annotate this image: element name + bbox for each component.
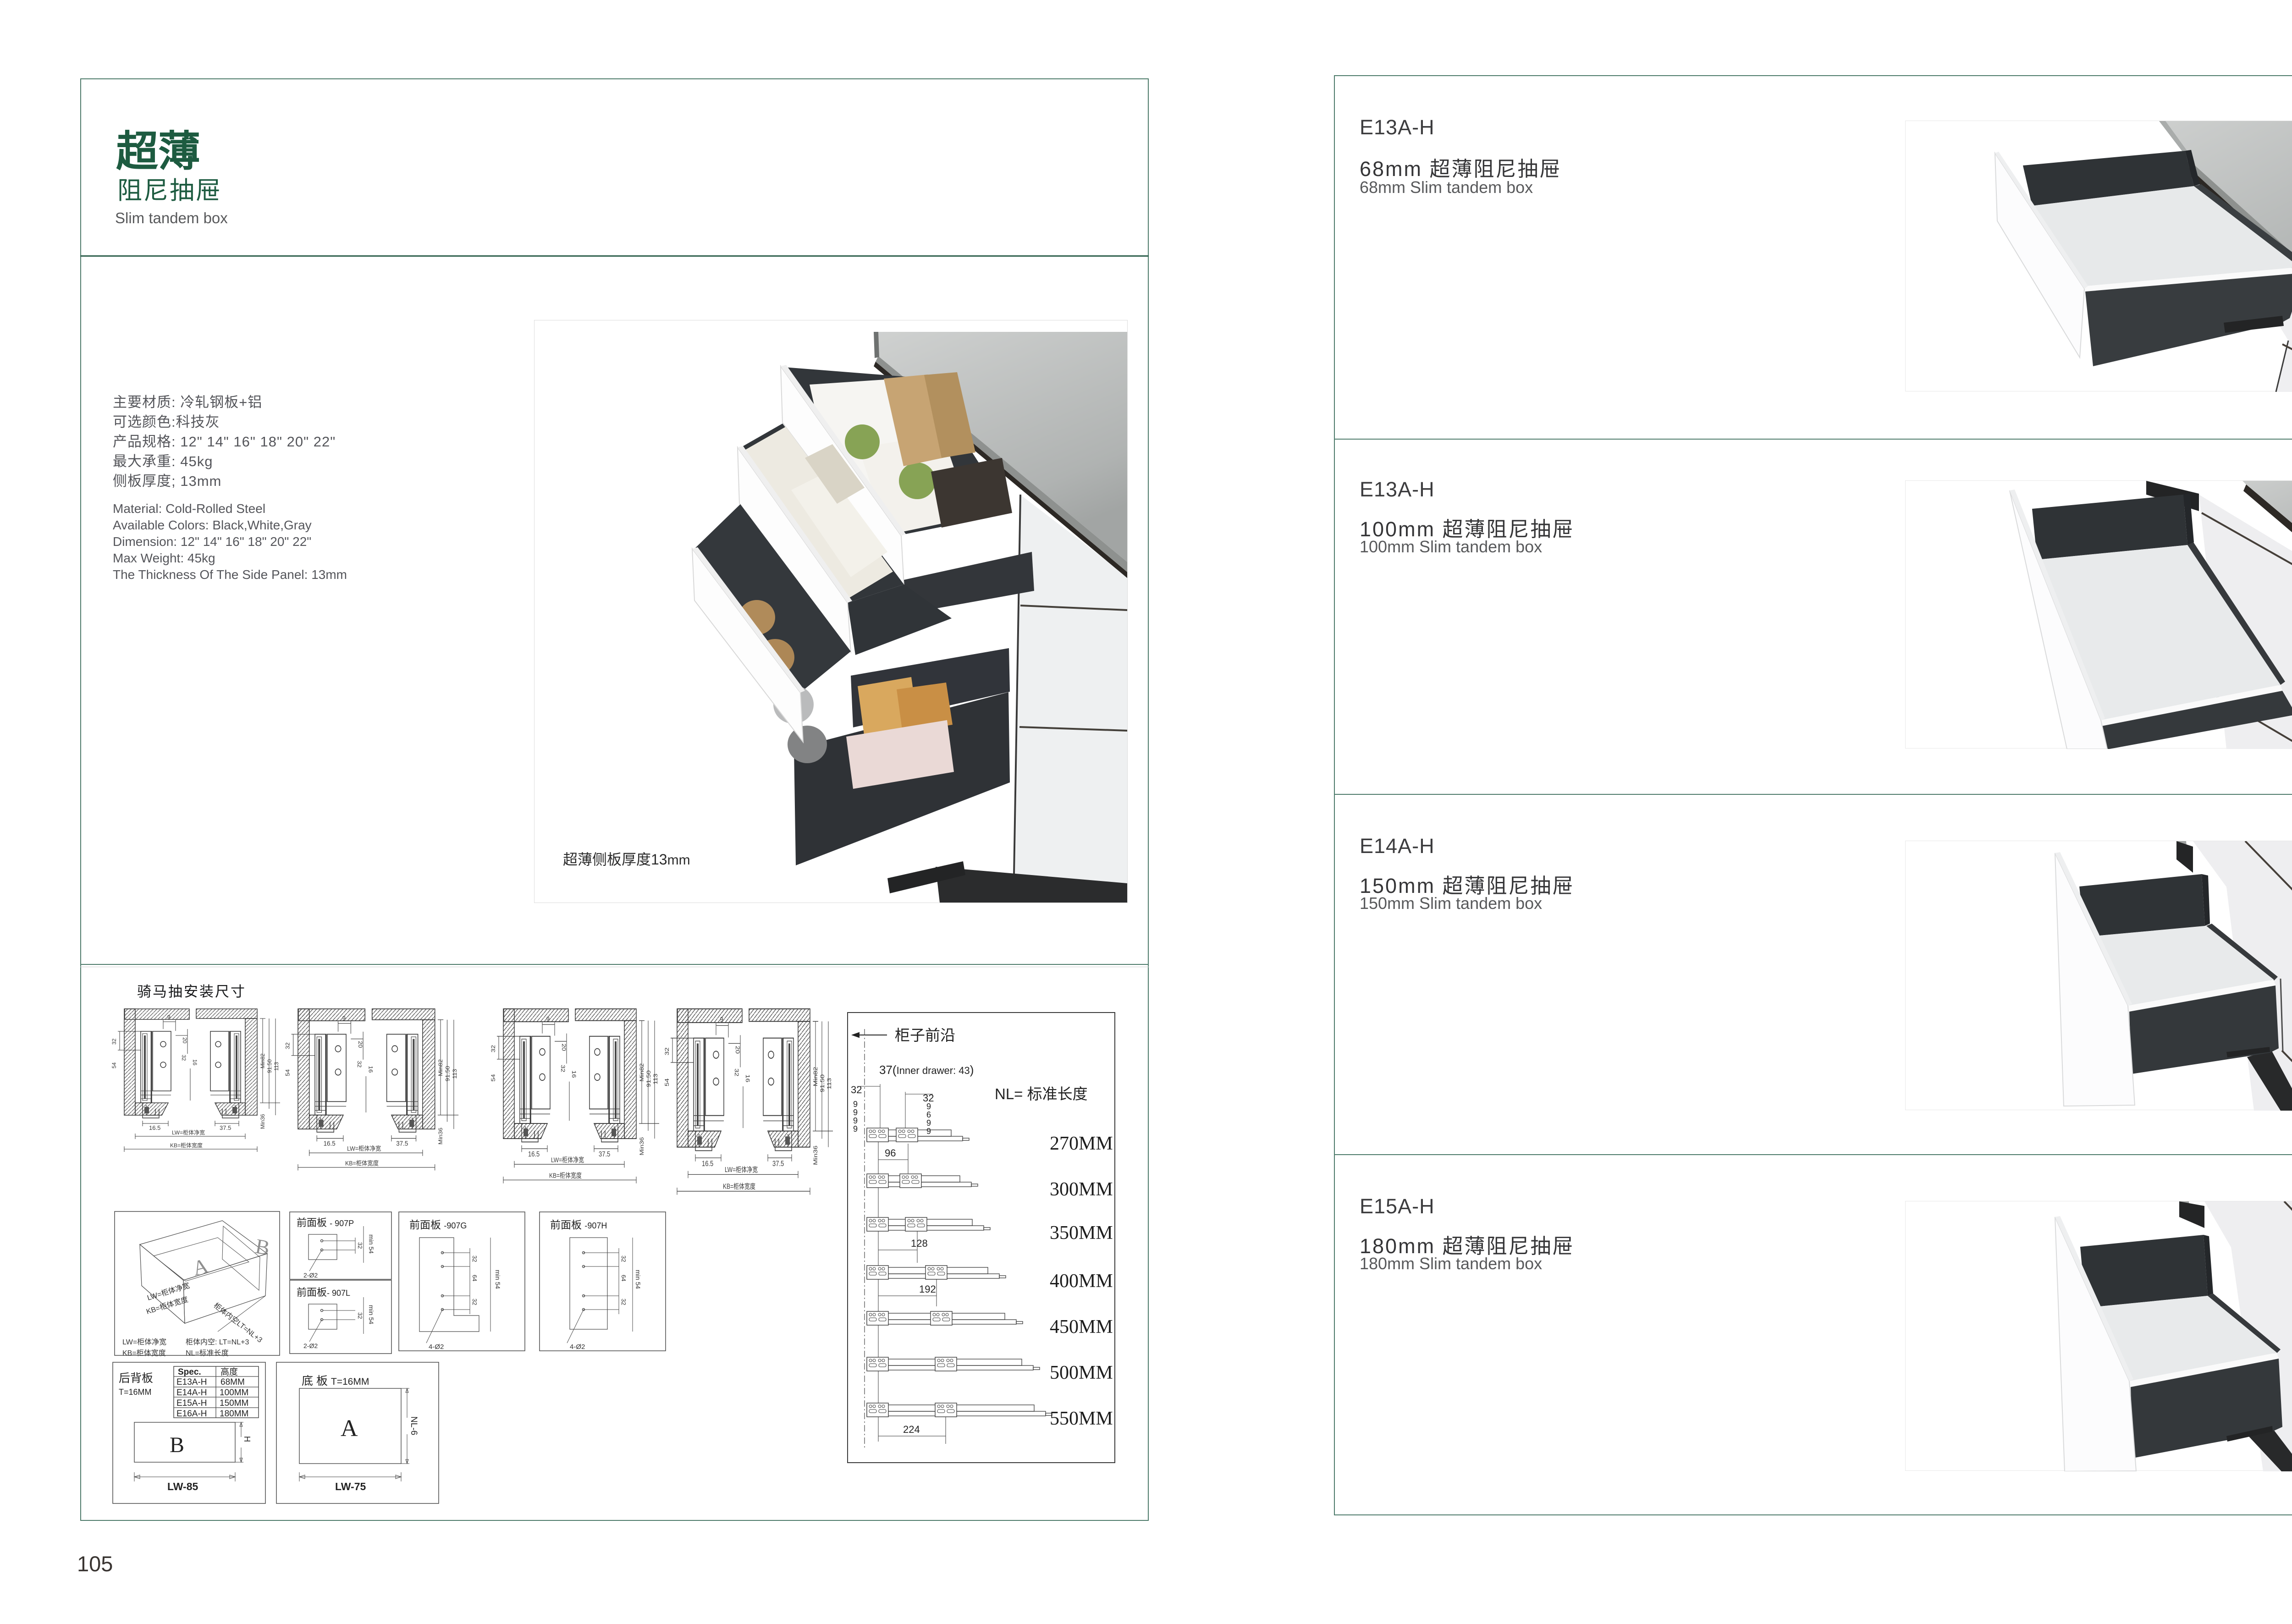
svg-text:9: 9 bbox=[853, 1124, 858, 1134]
svg-text:柜体内空: LT=NL+3: 柜体内空: LT=NL+3 bbox=[186, 1338, 249, 1346]
svg-text:224: 224 bbox=[903, 1424, 920, 1435]
svg-text:min 54: min 54 bbox=[368, 1305, 375, 1324]
svg-text:min 54: min 54 bbox=[368, 1234, 375, 1254]
svg-text:9: 9 bbox=[853, 1100, 858, 1109]
svg-text:4-Ø2: 4-Ø2 bbox=[570, 1343, 585, 1351]
svg-text:LW=柜体净宽: LW=柜体净宽 bbox=[122, 1338, 166, 1346]
svg-text:Spec.: Spec. bbox=[178, 1367, 201, 1377]
svg-text:E14A-H: E14A-H bbox=[176, 1388, 207, 1398]
svg-text:4-Ø2: 4-Ø2 bbox=[429, 1343, 444, 1351]
svg-text:前面板 - 907P: 前面板 - 907P bbox=[297, 1217, 354, 1228]
svg-text:9: 9 bbox=[926, 1127, 931, 1136]
svg-text:NL= 标准长度: NL= 标准长度 bbox=[995, 1085, 1088, 1102]
svg-text:后背板: 后背板 bbox=[119, 1372, 153, 1385]
svg-text:9: 9 bbox=[853, 1108, 858, 1117]
svg-text:32: 32 bbox=[357, 1242, 364, 1249]
svg-text:192: 192 bbox=[919, 1283, 936, 1295]
svg-text:min 54: min 54 bbox=[634, 1270, 642, 1289]
svg-text:32: 32 bbox=[620, 1255, 627, 1262]
svg-text:NL-6: NL-6 bbox=[409, 1416, 419, 1435]
svg-text:H: H bbox=[242, 1436, 252, 1442]
svg-text:96: 96 bbox=[885, 1147, 896, 1159]
svg-text:68MM: 68MM bbox=[220, 1377, 245, 1387]
svg-text:450MM: 450MM bbox=[1050, 1316, 1113, 1338]
svg-text:前面板- 907L: 前面板- 907L bbox=[297, 1287, 350, 1298]
svg-text:64: 64 bbox=[620, 1275, 627, 1281]
svg-text:B: B bbox=[170, 1433, 184, 1457]
svg-text:2-Ø2: 2-Ø2 bbox=[303, 1342, 318, 1349]
svg-text:150MM: 150MM bbox=[220, 1398, 248, 1408]
svg-text:min 54: min 54 bbox=[494, 1270, 501, 1289]
svg-text:9: 9 bbox=[926, 1102, 931, 1111]
svg-text:柜子前沿: 柜子前沿 bbox=[895, 1027, 955, 1044]
svg-text:9: 9 bbox=[926, 1118, 931, 1128]
svg-text:37(Inner drawer: 43): 37(Inner drawer: 43) bbox=[879, 1063, 974, 1077]
svg-text:350MM: 350MM bbox=[1050, 1222, 1113, 1244]
svg-text:32: 32 bbox=[471, 1255, 478, 1262]
svg-text:A: A bbox=[341, 1415, 358, 1442]
svg-text:前面板 -907H: 前面板 -907H bbox=[550, 1219, 607, 1231]
svg-text:E13A-H: E13A-H bbox=[176, 1377, 207, 1387]
svg-text:300MM: 300MM bbox=[1050, 1179, 1113, 1200]
svg-text:B: B bbox=[253, 1234, 271, 1260]
svg-text:128: 128 bbox=[911, 1238, 928, 1249]
svg-text:2-Ø2: 2-Ø2 bbox=[303, 1272, 318, 1279]
svg-text:32: 32 bbox=[851, 1084, 862, 1096]
svg-text:A: A bbox=[190, 1254, 211, 1280]
svg-text:KB=柜体宽度: KB=柜体宽度 bbox=[122, 1349, 166, 1357]
svg-text:6: 6 bbox=[926, 1110, 931, 1119]
svg-text:100MM: 100MM bbox=[220, 1388, 248, 1398]
svg-text:LW-85: LW-85 bbox=[167, 1481, 198, 1492]
svg-text:270MM: 270MM bbox=[1050, 1133, 1113, 1154]
svg-text:E15A-H: E15A-H bbox=[176, 1398, 207, 1408]
svg-text:400MM: 400MM bbox=[1050, 1271, 1113, 1292]
svg-text:32: 32 bbox=[620, 1299, 627, 1305]
svg-text:9: 9 bbox=[853, 1116, 858, 1125]
svg-text:E16A-H: E16A-H bbox=[176, 1409, 207, 1419]
svg-text:T=16MM: T=16MM bbox=[119, 1387, 152, 1397]
svg-text:32: 32 bbox=[471, 1299, 478, 1305]
svg-text:64: 64 bbox=[471, 1275, 478, 1281]
svg-text:高度: 高度 bbox=[220, 1367, 238, 1377]
svg-text:柜体内空LT=NL+3: 柜体内空LT=NL+3 bbox=[212, 1301, 264, 1344]
svg-text:500MM: 500MM bbox=[1050, 1362, 1113, 1383]
svg-text:前面板 -907G: 前面板 -907G bbox=[409, 1219, 467, 1231]
svg-text:LW-75: LW-75 bbox=[335, 1481, 366, 1492]
svg-text:32: 32 bbox=[357, 1312, 364, 1319]
svg-text:550MM: 550MM bbox=[1050, 1408, 1113, 1429]
svg-text:NL=标准长度: NL=标准长度 bbox=[186, 1349, 229, 1357]
svg-text:180MM: 180MM bbox=[220, 1409, 248, 1419]
svg-text:底 板 T=16MM: 底 板 T=16MM bbox=[302, 1375, 369, 1387]
